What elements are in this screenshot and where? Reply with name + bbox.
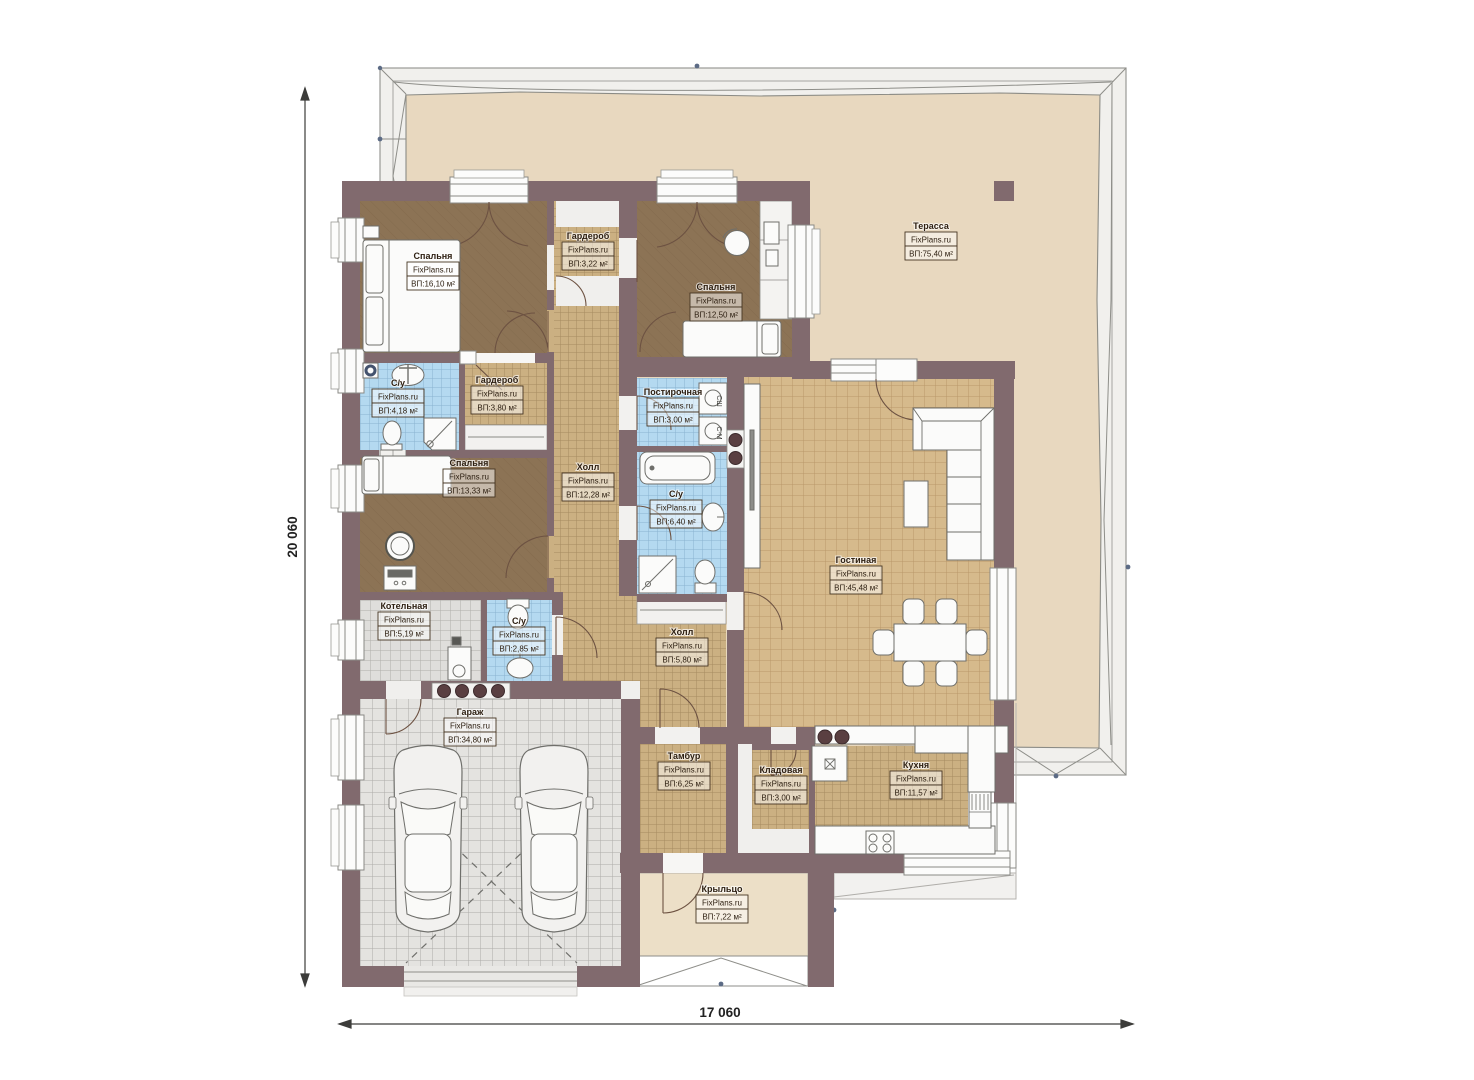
svg-text:FixPlans.ru: FixPlans.ru <box>702 899 742 908</box>
svg-text:Кухня: Кухня <box>903 760 929 770</box>
svg-text:ВП:6,40 м²: ВП:6,40 м² <box>656 518 696 527</box>
svg-text:FixPlans.ru: FixPlans.ru <box>664 766 704 775</box>
svg-text:FixPlans.ru: FixPlans.ru <box>568 477 608 486</box>
svg-text:FixPlans.ru: FixPlans.ru <box>450 722 490 731</box>
svg-text:ВП:5,80 м²: ВП:5,80 м² <box>662 656 702 665</box>
svg-text:ВП:34,80 м²: ВП:34,80 м² <box>448 736 492 745</box>
svg-text:FixPlans.ru: FixPlans.ru <box>413 266 453 275</box>
svg-text:Постирочная: Постирочная <box>644 387 702 397</box>
svg-text:FixPlans.ru: FixPlans.ru <box>662 642 702 651</box>
svg-text:FixPlans.ru: FixPlans.ru <box>761 780 801 789</box>
svg-text:FixPlans.ru: FixPlans.ru <box>477 390 517 399</box>
svg-text:СШ: СШ <box>715 395 722 406</box>
svg-text:С/у: С/у <box>391 378 405 388</box>
svg-text:ВП:13,33 м²: ВП:13,33 м² <box>447 487 491 496</box>
svg-text:FixPlans.ru: FixPlans.ru <box>836 570 876 579</box>
svg-text:FixPlans.ru: FixPlans.ru <box>911 236 951 245</box>
svg-text:ВП:12,28 м²: ВП:12,28 м² <box>566 491 610 500</box>
svg-text:Гардероб: Гардероб <box>567 231 610 241</box>
svg-text:ВП:4,18 м²: ВП:4,18 м² <box>378 407 418 416</box>
svg-text:Гараж: Гараж <box>457 707 484 717</box>
svg-text:ВП:2,85 м²: ВП:2,85 м² <box>499 645 539 654</box>
svg-text:С/у: С/у <box>669 489 683 499</box>
svg-text:Холл: Холл <box>671 627 694 637</box>
svg-text:ВП:3,22 м²: ВП:3,22 м² <box>568 260 608 269</box>
svg-text:Холл: Холл <box>577 462 600 472</box>
svg-text:Терасса: Терасса <box>913 221 950 231</box>
svg-text:FixPlans.ru: FixPlans.ru <box>896 775 936 784</box>
svg-text:ВП:75,40 м²: ВП:75,40 м² <box>909 250 953 259</box>
svg-text:Кладовая: Кладовая <box>759 765 802 775</box>
svg-text:ВП:7,22 м²: ВП:7,22 м² <box>702 913 742 922</box>
svg-text:Крыльцо: Крыльцо <box>702 884 743 894</box>
svg-text:Тамбур: Тамбур <box>668 751 701 761</box>
svg-text:FixPlans.ru: FixPlans.ru <box>499 631 539 640</box>
svg-text:FixPlans.ru: FixPlans.ru <box>378 393 418 402</box>
svg-text:ВП:16,10 м²: ВП:16,10 м² <box>411 280 455 289</box>
svg-text:Котельная: Котельная <box>380 601 427 611</box>
svg-text:ВП:3,00 м²: ВП:3,00 м² <box>653 416 693 425</box>
svg-text:ВП:12,50 м²: ВП:12,50 м² <box>694 311 738 320</box>
svg-text:FixPlans.ru: FixPlans.ru <box>653 402 693 411</box>
svg-text:FixPlans.ru: FixPlans.ru <box>696 297 736 306</box>
svg-text:ВП:45,48 м²: ВП:45,48 м² <box>834 584 878 593</box>
svg-text:С/у: С/у <box>512 616 526 626</box>
svg-text:ВП:6,25 м²: ВП:6,25 м² <box>664 780 704 789</box>
svg-text:ВП:3,80 м²: ВП:3,80 м² <box>477 404 517 413</box>
svg-text:Спальня: Спальня <box>697 282 736 292</box>
svg-text:Гардероб: Гардероб <box>476 375 519 385</box>
svg-text:С-М: С-М <box>715 426 722 439</box>
svg-text:ВП:3,00 м²: ВП:3,00 м² <box>761 794 801 803</box>
svg-text:20 060: 20 060 <box>285 516 300 557</box>
svg-text:FixPlans.ru: FixPlans.ru <box>656 504 696 513</box>
svg-text:ВП:11,57 м²: ВП:11,57 м² <box>894 789 937 798</box>
svg-text:ВП:5,19 м²: ВП:5,19 м² <box>384 630 424 639</box>
svg-text:17 060: 17 060 <box>699 1005 740 1020</box>
svg-text:Спальня: Спальня <box>414 251 453 261</box>
svg-text:FixPlans.ru: FixPlans.ru <box>449 473 489 482</box>
svg-text:Гостиная: Гостиная <box>836 555 877 565</box>
svg-text:FixPlans.ru: FixPlans.ru <box>384 616 424 625</box>
svg-text:Спальня: Спальня <box>450 458 489 468</box>
svg-text:FixPlans.ru: FixPlans.ru <box>568 246 608 255</box>
